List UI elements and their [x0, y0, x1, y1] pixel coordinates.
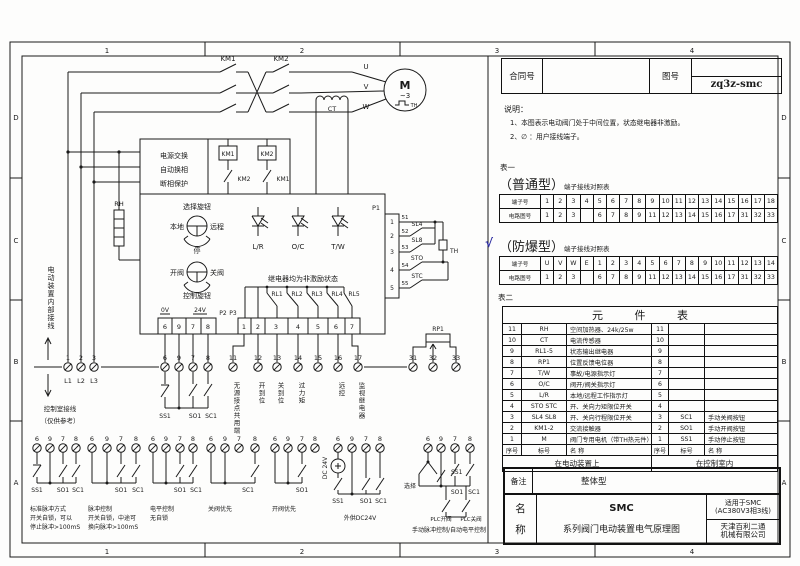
cell	[704, 357, 777, 367]
g2-caption2: 开关自锁，中途可	[88, 514, 136, 522]
notes-title: 说明：	[504, 104, 528, 115]
lamp-lr-label: L/R	[252, 243, 263, 251]
company-line-2: 机械有限公司	[721, 531, 766, 540]
cell: 14	[711, 195, 724, 208]
p3-cell: 5	[316, 323, 320, 331]
term-8: 8	[206, 354, 210, 362]
term11-note: 无源接点共用端	[227, 377, 239, 439]
term-16: 16	[334, 354, 342, 362]
term-1: 1	[66, 354, 70, 362]
cell: 2	[553, 271, 566, 284]
apply-line-2: (AC380V3相3线)	[715, 507, 771, 515]
wire-55: 55	[402, 281, 409, 287]
cell	[668, 357, 704, 367]
drawing-no-blank	[692, 59, 781, 77]
cell: RH	[521, 324, 566, 334]
p3-strip: P3 1 2 3 4 5 6 7	[229, 310, 360, 334]
p1-pin: 4	[390, 267, 394, 274]
lamp-oc: O/C	[292, 207, 308, 251]
fangbao-table: 端子号UVWE1234567891011121314 电路图号123678911…	[499, 256, 778, 285]
cell: 4	[632, 257, 645, 270]
frame-row-a: A	[14, 479, 19, 487]
cell: 15	[698, 209, 711, 222]
g7-plc-open: PLC开阀	[430, 515, 451, 523]
cell: 32	[751, 209, 764, 222]
ct-label: CT	[328, 105, 337, 113]
cell: 5	[651, 390, 668, 400]
km2-interlock-label: KM2	[238, 176, 251, 183]
apply-line-1: 适用于SMC	[725, 499, 761, 507]
name-char-2: 称	[515, 522, 526, 537]
cell: SS1	[668, 434, 704, 444]
cell: 11	[503, 324, 521, 334]
rl1-label: RL1	[271, 291, 283, 298]
cell: 9	[632, 209, 645, 222]
frame-row-cr: C	[782, 237, 787, 245]
stc-label: STC	[411, 273, 422, 280]
product-name: SMC	[609, 503, 634, 514]
cell: 9	[698, 257, 711, 270]
cell: 14	[685, 209, 698, 222]
g1-caption3: 停止脉冲>100mS	[30, 523, 80, 531]
cell: 13	[672, 271, 685, 284]
company-cell: 适用于SMC (AC380V3相3线) 天津百利二通 机械有限公司	[707, 495, 779, 543]
cell: L/R	[521, 390, 566, 400]
cell: 8	[503, 357, 521, 367]
cell: 位置反馈电位器	[566, 357, 651, 367]
cell: RL1-5	[521, 346, 566, 356]
p2-cell: 6	[163, 323, 167, 331]
cell: 16	[711, 209, 724, 222]
term13-note: 关到位	[271, 377, 283, 409]
km1-contacts-label: KM1	[220, 55, 235, 63]
p3-cell: 6	[334, 323, 338, 331]
cell: SO1	[668, 423, 704, 433]
cell: 开、关向行程限位开关	[566, 412, 651, 422]
g6-so1: SO1	[360, 498, 373, 505]
g3-caption1: 电平控制	[150, 505, 174, 513]
term12-note: 开到位	[252, 377, 264, 409]
remark-label: 备注	[505, 469, 533, 493]
putong-row-terminal: 端子号123456789101112131415161718	[500, 195, 777, 208]
g2-sc1: SC1	[132, 487, 144, 494]
cell: M	[521, 434, 566, 444]
g1-sc1: SC1	[72, 487, 84, 494]
term-11: 11	[229, 354, 237, 362]
control-knob: 开阀 关阀 控制旋钮	[170, 262, 224, 300]
p1-label: P1	[372, 204, 380, 212]
gterm: 6	[336, 435, 340, 443]
cell: 8	[685, 257, 698, 270]
name-char-1: 名	[515, 501, 526, 516]
frame-row-d: D	[13, 114, 18, 122]
contract-value	[542, 59, 649, 93]
heater-rh: RH	[114, 152, 140, 260]
wire-54: 54	[402, 263, 409, 269]
cell	[704, 346, 777, 356]
cell	[668, 390, 704, 400]
gterm: 7	[364, 435, 368, 443]
wiring-group-4: 6 9 7 8 SC1 关阀优先	[207, 435, 259, 513]
current-transformer: CT	[316, 96, 348, 194]
wiring-group-7: 6 9 7 8 选择 SS1 SO1 SC1 PLC开阀 PLC关阀 手动脉冲控…	[404, 435, 486, 534]
stop-label: 停	[194, 246, 201, 255]
component-row: 4STO STC开、关向力矩限位开关4	[503, 401, 777, 412]
local-label: 本地	[170, 222, 184, 231]
cell: SC1	[668, 412, 704, 422]
contract-label: 合同号	[502, 59, 542, 93]
cell: 31	[738, 209, 751, 222]
term-14: 14	[294, 354, 302, 362]
cell: 12	[659, 209, 672, 222]
p3-cell: 4	[296, 323, 300, 331]
component-table-title: 元 件 表	[503, 307, 777, 324]
cell: 交流接触器	[566, 423, 651, 433]
term-31: 31	[409, 354, 417, 362]
p1-connector: P1 1 2 3 4 5 51 52 53 54 55 SL4 SL8 STO	[372, 204, 458, 298]
cell: 6	[593, 271, 606, 284]
p1-pin: 1	[390, 219, 394, 226]
term-15: 15	[314, 354, 322, 362]
cell: 阀门专用电机（带TH热元件）	[566, 434, 651, 444]
l3-label: L3	[90, 377, 98, 385]
v0-label: 0V	[161, 307, 170, 314]
phase-w-label: W	[363, 103, 370, 111]
g1-caption2: 开关自锁，可以	[30, 514, 72, 522]
component-row: 2KM1-2交流接触器2SO1手动开阀按钮	[503, 423, 777, 434]
cell: 标号	[668, 445, 704, 455]
cell: 12	[685, 195, 698, 208]
term-9: 9	[177, 354, 181, 362]
cell: 9	[651, 346, 668, 356]
dc24v-label: DC 24V	[322, 456, 329, 479]
selector-knob: 选择旋钮 本地 远程 停	[170, 202, 224, 255]
gterm: 7	[61, 435, 65, 443]
cell: 10	[651, 335, 668, 345]
cell: 电路图号	[500, 271, 540, 284]
lamp-lr: L/R	[252, 207, 268, 251]
drawing-no-cell: zq3z-smc	[691, 59, 781, 93]
km1-interlock-label: KM1	[277, 176, 290, 183]
power-box-line1: 电源交换	[160, 151, 188, 160]
gterm: 8	[134, 435, 138, 443]
motor-phase: ~3	[400, 92, 410, 100]
cell	[704, 390, 777, 400]
p2-label: P2	[219, 310, 227, 317]
gterm: 8	[191, 435, 195, 443]
terminal-row: 1 2 3 L1 L2 L3 6 9 7 8 11 12 13 14 15 16…	[34, 334, 460, 425]
table1-caption: 表一	[500, 162, 515, 173]
gterm: 6	[151, 435, 155, 443]
component-header-row: 序号标号名 称序号标号名 称	[503, 445, 777, 456]
cell: 17	[724, 209, 737, 222]
cell	[668, 368, 704, 378]
g2-so1: SO1	[115, 487, 128, 494]
cell: 11	[672, 195, 685, 208]
cell: 11	[645, 271, 658, 284]
schematic-sheet: 1 2 3 4 1 2 3 4 D C B A D C B A KM1 KM2	[0, 0, 800, 566]
cell: O/C	[521, 379, 566, 389]
cell: 本地/远程工作指示灯	[566, 390, 651, 400]
term-13: 13	[273, 354, 281, 362]
cell: 3	[566, 209, 579, 222]
table2-caption: 表二	[498, 292, 513, 303]
wire-52: 52	[402, 229, 409, 235]
p1-pin: 5	[390, 285, 394, 292]
cell: 17	[724, 271, 737, 284]
cell	[668, 324, 704, 334]
cell: 17	[751, 195, 764, 208]
cell: 3	[651, 412, 668, 422]
cell: 阀开/阀关指示灯	[566, 379, 651, 389]
gterm: 9	[439, 435, 443, 443]
g7-sc1: SC1	[468, 489, 480, 496]
frame-row-ar: A	[782, 479, 787, 487]
control-knob-label: 控制旋钮	[183, 291, 211, 300]
fangbao-title: （防爆型）	[499, 240, 564, 255]
term-32: 32	[429, 354, 437, 362]
cell: 1	[651, 434, 668, 444]
wiring-group-5: 6 9 7 8 SO1 开阀优先	[271, 435, 319, 513]
cell: 7	[651, 368, 668, 378]
cell: E	[580, 257, 593, 270]
drawing-title: SMC 系列阀门电动装置电气原理图	[537, 495, 707, 543]
p3-cell: 2	[256, 323, 260, 331]
remark-box: 备注 整体型	[503, 467, 781, 495]
term-6: 6	[163, 354, 167, 362]
cell	[668, 335, 704, 345]
lamp-tw-label: T/W	[330, 243, 345, 251]
g5-so1: SO1	[296, 487, 309, 494]
th-label: TH	[449, 248, 458, 255]
cell: 标号	[521, 445, 566, 455]
gterm: 8	[468, 435, 472, 443]
product-description: 系列阀门电动装置电气原理图	[563, 522, 680, 535]
cell: KM1-2	[521, 423, 566, 433]
title-block: 名 称 SMC 系列阀门电动装置电气原理图 适用于SMC (AC380V3相3线…	[503, 493, 781, 545]
rl3-label: RL3	[311, 291, 323, 298]
power-box-line3: 断相保护	[160, 179, 188, 188]
fangbao-sub: 端子接线对照表	[564, 245, 610, 253]
cell: 12	[659, 271, 672, 284]
gterm: 8	[313, 435, 317, 443]
g6-caption1: 外供DC24V	[344, 514, 377, 522]
cell: 14	[764, 257, 777, 270]
cell: 8	[632, 195, 645, 208]
so1-label: SO1	[189, 413, 202, 420]
cell: T/W	[521, 368, 566, 378]
cell: 手动停止按钮	[704, 434, 777, 444]
fangbao-checkmark: √	[485, 236, 493, 250]
g1-caption1: 标准脉冲方式	[30, 505, 66, 513]
remote-label: 远程	[210, 222, 224, 231]
wire-51: 51	[402, 215, 409, 221]
l2-label: L2	[77, 377, 85, 385]
ss1-label: SS1	[159, 413, 171, 420]
cell: W	[566, 257, 579, 270]
km1-coil: KM1	[219, 139, 237, 194]
cell: 6	[593, 209, 606, 222]
panel-controls: 选择旋钮 本地 远程 停 开阀 关阀 控制旋钮 L/R O/C	[158, 202, 458, 362]
note-line-2: 2、∅ ：用户接线端子。	[510, 133, 584, 141]
power-box-line2: 自动换相	[160, 165, 188, 174]
contract-box: 合同号 图号 zq3z-smc	[501, 58, 782, 94]
term14-note: 过力矩	[292, 377, 304, 409]
gterm: 8	[74, 435, 78, 443]
frame-col-3: 3	[495, 47, 499, 55]
cell: 6	[606, 195, 619, 208]
sc1-label: SC1	[205, 413, 217, 420]
putong-table: 端子号123456789101112131415161718 电路图号12367…	[499, 194, 778, 223]
wiring-options: 6 9 7 8 SS1 SO1 SC1 标准脉冲方式 开关自锁，可以 停止脉冲>…	[30, 435, 486, 534]
cell: 4	[580, 195, 593, 208]
g7-plc-close: PLC关阀	[460, 515, 481, 523]
gterm: 6	[209, 435, 213, 443]
putong-header: （普通型）端子接线对照表	[499, 174, 610, 193]
cell: 8	[651, 357, 668, 367]
cell: 1	[540, 271, 553, 284]
gterm: 6	[273, 435, 277, 443]
cell: 手动关阀按钮	[704, 412, 777, 422]
wiring-group-6: 6 9 7 8 DC 24V SS1 SO1 SC1 外供DC24V	[322, 435, 387, 522]
cell: 8	[619, 271, 632, 284]
cell: 13	[672, 209, 685, 222]
motor-th: TH	[410, 103, 418, 109]
frame-col-3b: 3	[495, 548, 499, 556]
cell: 10	[711, 257, 724, 270]
gterm: 9	[105, 435, 109, 443]
applicability: 适用于SMC (AC380V3相3线)	[707, 495, 779, 520]
cell: 1	[593, 257, 606, 270]
component-row: 3SL4 SL8开、关向行程限位开关3SC1手动关阀按钮	[503, 412, 777, 423]
gterm: 6	[35, 435, 39, 443]
motor-m: M	[400, 79, 411, 92]
cell: 3	[503, 412, 521, 422]
phase-v-label: V	[364, 83, 369, 91]
cell: 7	[672, 257, 685, 270]
g3-caption2: 无自锁	[150, 514, 168, 522]
p1-pin: 2	[390, 233, 394, 240]
component-row: 6O/C阀开/阀关指示灯6	[503, 379, 777, 390]
g2-caption1: 脉冲控制	[88, 505, 112, 513]
cell: 6	[503, 379, 521, 389]
cell: 5	[503, 390, 521, 400]
frame-row-dr: D	[781, 114, 786, 122]
gterm: 9	[350, 435, 354, 443]
ref-only-note: （仅供参考）	[41, 416, 80, 425]
cell: 15	[724, 195, 737, 208]
cell: 5	[645, 257, 658, 270]
p2-cell: 8	[206, 323, 210, 331]
frame-col-2: 2	[300, 47, 304, 55]
wiring-group-1: 6 9 7 8 SS1 SO1 SC1 标准脉冲方式 开关自锁，可以 停止脉冲>…	[30, 435, 84, 531]
fangbao-row-circuit: 电路图号123678911121314151617313233	[500, 270, 777, 284]
internal-wiring-note: 电动装置内部接线	[42, 258, 54, 338]
wiring-group-2: 6 9 7 8 SO1 SC1 脉冲控制 开关自锁，中途可 换向脉冲>100mS	[88, 435, 144, 531]
cell	[704, 335, 777, 345]
p1-pin: 3	[390, 249, 394, 256]
drawing-no-value: zq3z-smc	[711, 79, 763, 90]
cell: 9	[645, 195, 658, 208]
cell	[668, 346, 704, 356]
cell: SL4 SL8	[521, 412, 566, 422]
cell: 15	[698, 271, 711, 284]
cell: 32	[751, 271, 764, 284]
cell: 11	[645, 209, 658, 222]
cell: 8	[619, 209, 632, 222]
term-33: 33	[452, 354, 460, 362]
component-row: 9RL1-5状态输出继电器9	[503, 346, 777, 357]
cell	[704, 401, 777, 411]
cell: 事故/电源指示灯	[566, 368, 651, 378]
cell: STO STC	[521, 401, 566, 411]
g1-ss1: SS1	[31, 487, 43, 494]
component-row: 8RP1位置反馈电位器8	[503, 357, 777, 368]
term16-note: 远控	[332, 377, 344, 401]
company-name: 天津百利二通 机械有限公司	[707, 520, 779, 544]
cell: 序号	[503, 445, 521, 455]
cell: 5	[593, 195, 606, 208]
cell: 2	[606, 257, 619, 270]
gterm: 8	[378, 435, 382, 443]
km1-coil-label: KM1	[222, 151, 235, 158]
component-table: 元 件 表 11RH空间加热器、24k/25w11 10CT电流传感器10 9R…	[502, 306, 778, 472]
cell: 2	[553, 209, 566, 222]
cell: 序号	[651, 445, 668, 455]
sl4-label: SL4	[412, 221, 423, 228]
term-2: 2	[79, 354, 83, 362]
cell: 9	[632, 271, 645, 284]
cell: 33	[764, 209, 777, 222]
putong-title: （普通型）	[499, 178, 564, 193]
name-label: 名 称	[505, 495, 537, 543]
putong-row-circuit: 电路图号123678911121314151617313233	[500, 208, 777, 222]
cell	[668, 379, 704, 389]
cell: 电流传感器	[566, 335, 651, 345]
cell: 12	[738, 257, 751, 270]
rp1-label: RP1	[432, 326, 444, 333]
p3-cell: 7	[350, 323, 354, 331]
gterm: 6	[90, 435, 94, 443]
cell: V	[553, 257, 566, 270]
cell: 1	[540, 195, 553, 208]
cell	[580, 209, 593, 222]
cell: 33	[764, 271, 777, 284]
cell: 6	[659, 257, 672, 270]
cell: 7	[606, 271, 619, 284]
cell: 3	[619, 257, 632, 270]
term-3: 3	[92, 354, 96, 362]
component-row: 11RH空间加热器、24k/25w11	[503, 324, 777, 335]
rl5-label: RL5	[348, 291, 360, 298]
cell: 7	[503, 368, 521, 378]
cell: 状态输出继电器	[566, 346, 651, 356]
frame-row-c: C	[14, 237, 19, 245]
cell: 4	[503, 401, 521, 411]
cell: 2	[503, 423, 521, 433]
cell	[704, 368, 777, 378]
cell: 13	[698, 195, 711, 208]
term17-note: 监视继电器	[352, 377, 364, 425]
component-row: 5L/R本地/远程工作指示灯5	[503, 390, 777, 401]
component-row: 7T/W事故/电源指示灯7	[503, 368, 777, 379]
frame-col-4: 4	[690, 47, 695, 55]
frame-col-1b: 1	[105, 548, 109, 556]
cell: 3	[566, 195, 579, 208]
cell: 13	[751, 257, 764, 270]
cell: 名 称	[566, 445, 651, 455]
g7-ss1: SS1	[451, 469, 463, 476]
